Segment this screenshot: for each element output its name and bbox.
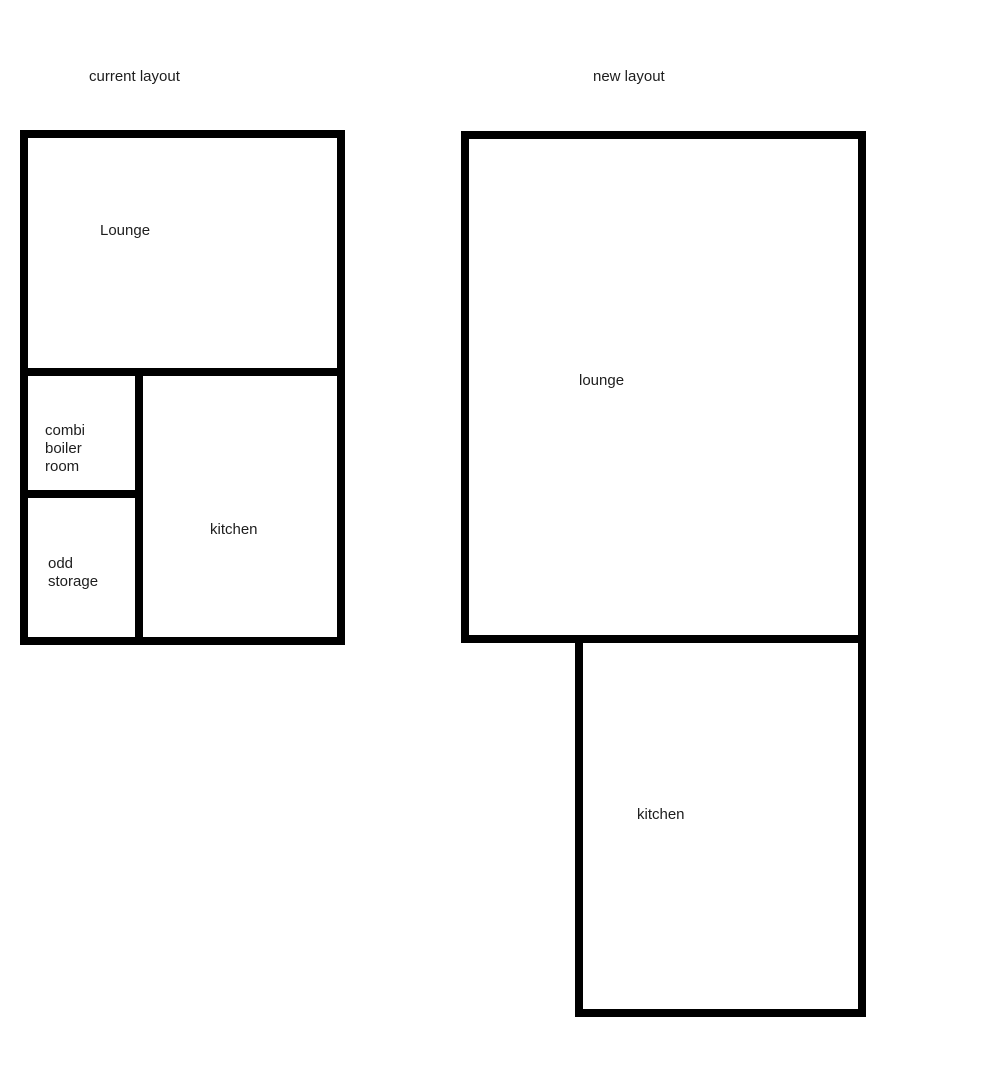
- floorplan-canvas: current layout new layout Lounge combi b…: [0, 0, 993, 1072]
- room-label-combi-boiler-room: combi boiler room: [45, 422, 85, 476]
- wall-kitchen-left: [135, 376, 143, 645]
- new-plan-kitchen-outline: [575, 635, 866, 1017]
- wall-boiler-storage-divider: [20, 490, 143, 498]
- current-plan-title: current layout: [89, 68, 180, 86]
- new-plan-title: new layout: [593, 68, 665, 86]
- room-label-lounge-new: lounge: [579, 372, 624, 390]
- wall-lounge-bottom: [20, 368, 345, 376]
- room-label-lounge-current: Lounge: [100, 222, 150, 240]
- room-label-kitchen-new: kitchen: [637, 806, 685, 824]
- new-plan-lounge-outline: [461, 131, 866, 643]
- room-label-odd-storage: odd storage: [48, 555, 98, 591]
- room-label-kitchen-current: kitchen: [210, 521, 258, 539]
